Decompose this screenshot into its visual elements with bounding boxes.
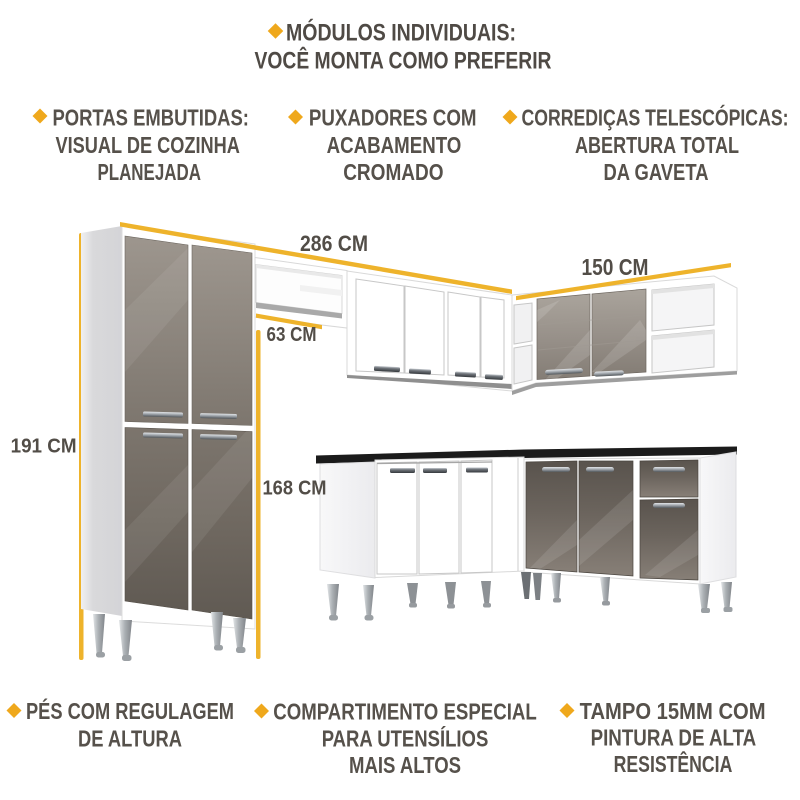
svg-text:PÉS COM REGULAGEM: PÉS COM REGULAGEM (26, 697, 234, 724)
svg-text:286 CM: 286 CM (300, 231, 368, 256)
svg-text:PINTURA DE ALTA: PINTURA DE ALTA (591, 725, 757, 751)
svg-text:CROMADO: CROMADO (343, 159, 443, 185)
svg-text:PARA UTENSÍLIOS: PARA UTENSÍLIOS (322, 725, 489, 752)
svg-text:ABERTURA TOTAL: ABERTURA TOTAL (575, 132, 739, 158)
svg-text:MÓDULOS INDIVIDUAIS:: MÓDULOS INDIVIDUAIS: (286, 19, 516, 47)
svg-text:191 CM: 191 CM (11, 436, 77, 458)
svg-text:PORTAS EMBUTIDAS:: PORTAS EMBUTIDAS: (52, 105, 249, 131)
svg-text:COMPARTIMENTO ESPECIAL: COMPARTIMENTO ESPECIAL (273, 699, 537, 725)
svg-text:63 CM: 63 CM (267, 324, 317, 346)
svg-text:MAIS ALTOS: MAIS ALTOS (349, 752, 461, 778)
svg-text:TAMPO 15MM COM: TAMPO 15MM COM (580, 698, 766, 724)
svg-text:168 CM: 168 CM (263, 478, 327, 500)
svg-text:RESISTÊNCIA: RESISTÊNCIA (614, 750, 733, 777)
svg-text:DE ALTURA: DE ALTURA (78, 726, 182, 752)
svg-text:150 CM: 150 CM (582, 254, 649, 280)
svg-text:VISUAL DE COZINHA: VISUAL DE COZINHA (55, 132, 240, 158)
svg-text:VOCÊ MONTA COMO PREFERIR: VOCÊ MONTA COMO PREFERIR (255, 47, 552, 75)
svg-text:PUXADORES COM: PUXADORES COM (309, 105, 477, 131)
svg-text:DA GAVETA: DA GAVETA (604, 159, 709, 185)
svg-text:PLANEJADA: PLANEJADA (97, 159, 201, 185)
svg-text:ACABAMENTO: ACABAMENTO (327, 132, 462, 158)
svg-text:CORREDIÇAS TELESCÓPICAS:: CORREDIÇAS TELESCÓPICAS: (522, 104, 789, 131)
